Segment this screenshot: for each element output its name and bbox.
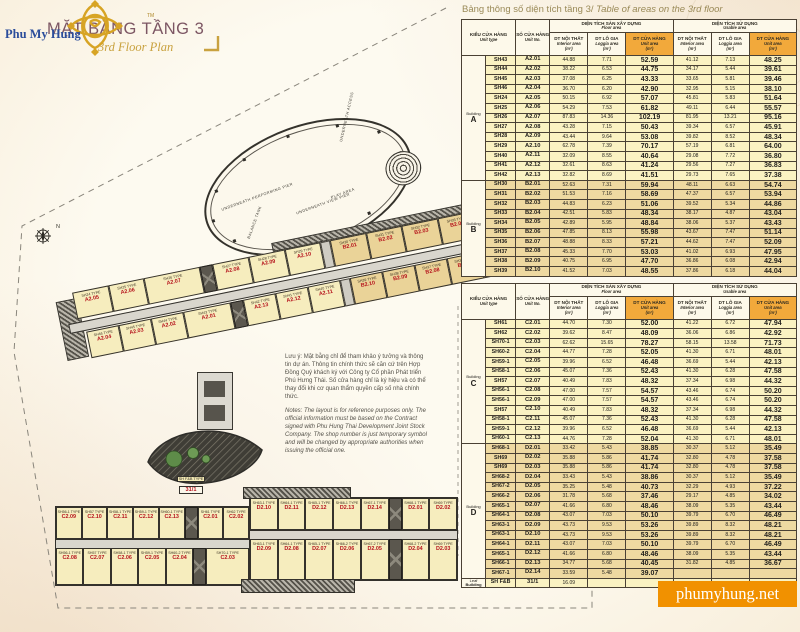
unit-usable-cell: 36.83 [749, 161, 796, 171]
loggia-floor-cell: 5.43 [588, 444, 626, 454]
col-floor-area-group: DIỆN TÍCH SÀN XÂY DỰNGFloor area [550, 20, 673, 33]
unit-usable-cell: 51.14 [749, 228, 796, 238]
interior-floor-cell: 43.73 [550, 521, 588, 531]
interior-usable-cell: 39.89 [673, 530, 711, 540]
unit-usable-cell: 50.20 [749, 386, 796, 396]
unit-no-cell: C2.03 [516, 338, 550, 348]
interior-usable-cell: 29.56 [673, 161, 711, 171]
unit-usable-cell: 48.21 [749, 521, 796, 531]
unit-number: D2.07 [312, 546, 326, 553]
unit-usable-cell: 39.61 [749, 65, 796, 75]
unit-cell: SH64-1 TYPED2.11 [278, 498, 306, 530]
unit-row: SH56-1 TYPEC2.09SH57 TYPEC2.10SH58-1 TYP… [56, 507, 249, 539]
unit-type-cell: SH56-1 [486, 386, 516, 396]
loggia-usable-cell: 5.35 [711, 549, 749, 559]
unit-type-cell: SH27 [486, 123, 516, 133]
loggia-floor-cell: 5.95 [588, 219, 626, 229]
table-row: SH34B2.0542.895.9548.8438.065.3743.43 [462, 219, 797, 229]
interior-usable-cell: 38.09 [673, 549, 711, 559]
loggia-usable-cell: 13.58 [711, 338, 749, 348]
unit-cell: SH27 TYPEA2.08 [213, 257, 254, 291]
unit-type-cell: SH44 [486, 65, 516, 75]
unit-cell: SH68-1 TYPED2.01 [402, 498, 430, 530]
unit-no-cell: D2.07 [516, 501, 550, 511]
table-row: SH62C2.0239.628.4748.0936.066.8642.92 [462, 329, 797, 339]
unit-number: A2.10 [297, 251, 312, 260]
loggia-floor-cell: 6.53 [588, 65, 626, 75]
unit-number: A2.12 [286, 295, 301, 304]
unit-no-cell: D2.01 [516, 444, 550, 454]
compass-north-label: N [56, 224, 60, 230]
loggia-floor-cell: 7.16 [588, 190, 626, 200]
loggia-usable-cell: 5.83 [711, 94, 749, 104]
unit-number: A2.02 [161, 321, 176, 330]
unit-row: SH63-1 TYPED2.09SH64-1 TYPED2.08SH65-1 T… [250, 539, 457, 580]
interior-floor-cell: 40.75 [550, 257, 588, 267]
table-row: SH67-2D2.0535.255.4840.7332.294.9337.22 [462, 482, 797, 492]
table-row: SH45A2.0337.086.2543.3333.655.8139.46 [462, 75, 797, 85]
table-row: SH63-1D2.0943.739.5353.2639.898.3248.21 [462, 521, 797, 531]
loggia-floor-cell: 5.68 [588, 559, 626, 569]
unit-no-cell: D2.08 [516, 511, 550, 521]
unit-floor-cell: 47.70 [626, 257, 673, 267]
unit-type-cell: SH59-1 [486, 425, 516, 435]
unit-no-cell: A2.11 [516, 151, 550, 161]
unit-usable-cell: 47.58 [749, 415, 796, 425]
interior-floor-cell: 43.73 [550, 530, 588, 540]
unit-number: C2.04 [172, 555, 186, 562]
building-label: LeafBuilding [462, 578, 486, 588]
table-row: SH27A2.0843.287.1550.4339.346.5745.91 [462, 123, 797, 133]
unit-no-cell: D2.02 [516, 453, 550, 463]
interior-usable-cell: 39.79 [673, 540, 711, 550]
table-row: SH70-1C2.0362.6215.6578.2758.1513.5871.7… [462, 338, 797, 348]
unit-type-cell: SH33 [486, 209, 516, 219]
unit-usable-cell: 37.58 [749, 453, 796, 463]
unit-floor-cell: 52.43 [626, 367, 673, 377]
interior-floor-cell: 36.70 [550, 84, 588, 94]
table-row: SH26A2.0787.8314.36102.1981.9513.2195.16 [462, 113, 797, 123]
unit-no-cell: C2.06 [516, 367, 550, 377]
unit-no-cell: A2.07 [516, 113, 550, 123]
unit-no-cell: B2.05 [516, 219, 550, 229]
unit-type-cell: SH67-2 [486, 482, 516, 492]
interior-floor-cell: 31.78 [550, 492, 588, 502]
unit-type-cell: SH24 [486, 94, 516, 104]
interior-usable-cell: 31.82 [673, 559, 711, 569]
unit-no-cell: A2.05 [516, 94, 550, 104]
table-row: SH40A2.1132.098.5540.6429.087.7236.80 [462, 151, 797, 161]
unit-floor-cell: 46.48 [626, 425, 673, 435]
unit-number: D2.01 [408, 505, 422, 512]
unit-floor-cell: 38.86 [626, 473, 673, 483]
unit-usable-cell: 48.01 [749, 348, 796, 358]
unit-cell: SH28 TYPEA2.09 [248, 250, 289, 284]
unit-number: A2.13 [254, 302, 269, 311]
unit-usable-cell: 54.74 [749, 180, 796, 190]
unit-floor-cell: 48.84 [626, 219, 673, 229]
loggia-usable-cell: 6.57 [711, 190, 749, 200]
unit-no-cell: B2.07 [516, 238, 550, 248]
unit-no-cell: D2.11 [516, 540, 550, 550]
elevator-core [185, 507, 198, 539]
unit-type-cell: SH29 [486, 142, 516, 152]
unit-type-cell: SH32 [486, 199, 516, 209]
interior-floor-cell: 33.42 [550, 444, 588, 454]
unit-cell: SH32 TYPEB2.03 [402, 218, 443, 252]
unit-floor-cell: 54.57 [626, 396, 673, 406]
tree-icon [202, 455, 210, 463]
loggia-floor-cell: 9.53 [588, 530, 626, 540]
unit-floor-cell: 46.48 [626, 358, 673, 368]
interior-floor-cell: 47.85 [550, 228, 588, 238]
loggia-floor-cell: 7.30 [588, 319, 626, 329]
loggia-usable-cell: 7.27 [711, 161, 749, 171]
unit-number: D2.12 [312, 505, 326, 512]
interior-floor-cell: 32.61 [550, 161, 588, 171]
unit-number: D2.13 [340, 505, 354, 512]
unit-cell: SH63-1 TYPED2.10 [250, 498, 278, 530]
unit-usable-cell: 42.92 [749, 329, 796, 339]
loggia-floor-cell: 7.70 [588, 247, 626, 257]
unit-no-cell: D2.13 [516, 559, 550, 569]
interior-usable-cell: 81.95 [673, 113, 711, 123]
unit-number: C2.12 [139, 514, 153, 521]
interior-floor-cell: 43.07 [550, 511, 588, 521]
unit-number: C2.07 [90, 555, 104, 562]
unit-usable-cell: 46.49 [749, 511, 796, 521]
loggia-floor-cell: 5.48 [588, 482, 626, 492]
unit-type-cell: SH39 [486, 267, 516, 277]
loggia-floor-cell: 5.43 [588, 473, 626, 483]
interior-floor-cell: 45.07 [550, 367, 588, 377]
interior-usable-cell: 41.12 [673, 56, 711, 66]
unit-number: D2.09 [257, 546, 271, 553]
unit-floor-cell: 59.94 [626, 180, 673, 190]
unit-usable-cell: 48.01 [749, 434, 796, 444]
unit-no-cell: D2.05 [516, 482, 550, 492]
unit-type-cell: SH67-1 [486, 569, 516, 579]
col-interior-usable: DT NỘI THẤTInterior area(m²) [673, 296, 711, 319]
interior-usable-cell: 49.11 [673, 103, 711, 113]
loggia-floor-cell: 5.48 [588, 569, 626, 579]
interior-usable-cell: 36.69 [673, 425, 711, 435]
loggia-floor-cell: 6.52 [588, 425, 626, 435]
building-label: BuildingB [462, 180, 486, 276]
unit-floor-cell: 42.90 [626, 84, 673, 94]
unit-cell: SH67-1 TYPED2.14 [361, 498, 389, 530]
col-unit-floor: DT CỬA HÀNGUnit area(m²) [626, 33, 673, 56]
unit-floor-cell: 58.69 [626, 190, 673, 200]
unit-no-cell: 31/1 [516, 578, 550, 588]
unit-number: A2.07 [166, 278, 181, 287]
unit-type-cell: SH64-1 [486, 540, 516, 550]
underneath-view-pier-label: UNDERNEATH VIEW PIER [296, 201, 326, 216]
interior-floor-cell: 43.07 [550, 540, 588, 550]
unit-usable-cell: 43.43 [749, 219, 796, 229]
table-row: SH57C2.0740.497.8348.3237.346.9844.32 [462, 377, 797, 387]
areas-table: KIỂU CỬA HÀNGUnit typeSỐ CỬA HÀNGUnit No… [461, 283, 797, 589]
unit-floor-cell: 41.74 [626, 463, 673, 473]
loggia-floor-cell: 7.57 [588, 396, 626, 406]
interior-floor-cell: 33.59 [550, 569, 588, 579]
brand-name: Phu My Hung [5, 27, 81, 42]
table-row: SH56-1C2.0947.007.5754.5743.466.7450.20 [462, 396, 797, 406]
loggia-usable-cell: 7.65 [711, 171, 749, 181]
compass-rose: N [34, 227, 58, 251]
unit-usable-cell: 39.46 [749, 75, 796, 85]
loggia-usable-cell: 6.74 [711, 396, 749, 406]
loggia-usable-cell: 7.13 [711, 56, 749, 66]
unit-number: B2.10 [360, 280, 375, 289]
unit-cell: SH24 TYPEA2.05 [72, 285, 113, 319]
interior-usable-cell: 30.37 [673, 473, 711, 483]
col-loggia-usable: DT LÔ GIALoggia area(m²) [711, 296, 749, 319]
unit-floor-cell: 102.19 [626, 113, 673, 123]
loggia-usable-cell: 6.28 [711, 415, 749, 425]
building-label: BuildingD [462, 444, 486, 578]
loggia-floor-cell: 7.53 [588, 103, 626, 113]
unit-usable-cell: 42.13 [749, 358, 796, 368]
table-row: SH28A2.0943.449.6453.0839.828.5248.34 [462, 132, 797, 142]
unit-usable-cell: 44.32 [749, 377, 796, 387]
roof-hatch [241, 579, 355, 593]
spiral-ramp [381, 146, 426, 190]
unit-type-cell: SH59-1 [486, 358, 516, 368]
unit-type-cell: SH65-1 [486, 549, 516, 559]
loggia-floor-cell: 7.03 [588, 267, 626, 277]
unit-no-cell: A2.10 [516, 142, 550, 152]
table-row: SH57C2.1040.497.8348.3237.346.9844.32 [462, 406, 797, 416]
unit-number: C2.06 [117, 555, 131, 562]
unit-no-cell: B2.06 [516, 228, 550, 238]
loggia-usable-cell: 6.63 [711, 180, 749, 190]
interior-floor-cell: 16.09 [550, 578, 588, 588]
unit-number: B2.08 [425, 267, 440, 276]
table-row: SH68-2D2.0433.435.4338.8630.375.1235.49 [462, 473, 797, 483]
loggia-floor-cell: 6.80 [588, 501, 626, 511]
table-row: SH39B2.1041.527.0348.5537.866.1844.04 [462, 267, 797, 277]
unit-number: B2.02 [378, 235, 393, 244]
interior-usable-cell: 38.17 [673, 209, 711, 219]
col-interior-usable: DT NỘI THẤTInterior area(m²) [673, 33, 711, 56]
service-room [204, 381, 225, 397]
table-row: SH66-1D2.1334.775.6840.4531.824.8536.67 [462, 559, 797, 569]
table-row: BuildingASH43A2.0144.887.7152.5941.127.1… [462, 56, 797, 66]
interior-usable-cell: 32.80 [673, 463, 711, 473]
unit-no-cell: C2.05 [516, 358, 550, 368]
col-unit-floor: DT CỬA HÀNGUnit area(m²) [626, 296, 673, 319]
loggia-floor-cell: 7.57 [588, 386, 626, 396]
loggia-floor-cell: 7.36 [588, 367, 626, 377]
loggia-usable-cell: 7.47 [711, 238, 749, 248]
unit-no-cell: C2.07 [516, 377, 550, 387]
unit-floor-cell: 44.75 [626, 65, 673, 75]
loggia-floor-cell: 8.33 [588, 238, 626, 248]
unit-usable-cell: 43.44 [749, 549, 796, 559]
table-row: SH60-2C2.0444.777.2852.0541.306.7148.01 [462, 348, 797, 358]
col-interior-floor: DT NỘI THẤTInterior area(m²) [550, 296, 588, 319]
table-row: SH63-1D2.1043.739.5353.2639.898.3248.21 [462, 530, 797, 540]
loggia-floor-cell: 9.64 [588, 132, 626, 142]
loggia-floor-cell: 7.03 [588, 540, 626, 550]
loggia-usable-cell: 6.28 [711, 367, 749, 377]
unit-floor-cell: 43.33 [626, 75, 673, 85]
unit-usable-cell: 64.00 [749, 142, 796, 152]
loggia-usable-cell [711, 569, 749, 579]
loggia-floor-cell: 14.36 [588, 113, 626, 123]
unit-usable-cell: 48.21 [749, 530, 796, 540]
unit-cell: SH40 TYPEA2.11 [308, 280, 346, 313]
table-row: SH37B2.0845.337.7053.0341.026.9347.95 [462, 247, 797, 257]
interior-usable-cell: 44.62 [673, 238, 711, 248]
interior-usable-cell: 39.79 [673, 511, 711, 521]
tree-icon [188, 448, 199, 459]
table-row: SH69D2.0235.885.8641.7432.804.7837.58 [462, 453, 797, 463]
area-tables-panel: Bảng thông số diện tích tầng 3/ Table of… [461, 0, 799, 594]
building-d-strip: SH63-1 TYPED2.10SH64-1 TYPED2.11SH65-1 T… [249, 497, 458, 581]
table-row: SH42A2.1332.828.6941.5129.737.6537.38 [462, 171, 797, 181]
interior-usable-cell: 43.46 [673, 396, 711, 406]
unit-number: A2.06 [120, 287, 135, 296]
unit-type-cell: SH66-2 [486, 492, 516, 502]
loggia-usable-cell: 6.81 [711, 142, 749, 152]
interior-usable-cell: 41.30 [673, 348, 711, 358]
col-unit-no: SỐ CỬA HÀNGUnit No. [516, 20, 550, 56]
interior-usable-cell: 36.69 [673, 358, 711, 368]
service-room [204, 405, 225, 421]
unit-cell: SH69 TYPED2.03 [429, 539, 457, 580]
areas-table-cd: KIỂU CỬA HÀNGUnit typeSỐ CỬA HÀNGUnit No… [461, 283, 799, 589]
unit-usable-cell: 42.13 [749, 425, 796, 435]
unit-usable-cell: 43.44 [749, 501, 796, 511]
elevator-core [193, 548, 206, 585]
table-row: SH58-1C2.1145.077.3652.4341.306.2847.58 [462, 415, 797, 425]
unit-cell: SH58-1 TYPEC2.11 [107, 507, 133, 539]
unit-type-cell: SH26 [486, 113, 516, 123]
unit-type-cell: SH37 [486, 247, 516, 257]
interior-usable-cell: 32.80 [673, 453, 711, 463]
unit-number: C2.13 [165, 514, 179, 521]
interior-floor-cell: 44.70 [550, 319, 588, 329]
unit-type-cell: SH69 [486, 453, 516, 463]
loggia-usable-cell: 5.44 [711, 358, 749, 368]
areas-table: KIỂU CỬA HÀNGUnit typeSỐ CỬA HÀNGUnit No… [461, 19, 797, 277]
unit-floor-cell: 51.06 [626, 199, 673, 209]
unit-cell: SH65-1 TYPED2.12 [305, 498, 333, 530]
table-row: SH59-1C2.0539.966.5246.4836.695.4442.13 [462, 358, 797, 368]
unit-type-cell: SH58-1 [486, 415, 516, 425]
unit-usable-cell: 47.58 [749, 367, 796, 377]
loggia-floor-cell: 7.83 [588, 377, 626, 387]
unit-cell: SH63-1 TYPED2.09 [250, 539, 278, 580]
loggia-usable-cell: 5.34 [711, 199, 749, 209]
table-row: BuildingBSH30B2.0152.637.3159.9448.116.6… [462, 180, 797, 190]
interior-usable-cell: 47.37 [673, 190, 711, 200]
unit-row: SH63-1 TYPED2.10SH64-1 TYPED2.11SH65-1 T… [250, 498, 457, 530]
unit-type-cell: SH68-1 [486, 444, 516, 454]
loggia-usable-cell: 4.78 [711, 463, 749, 473]
interior-floor-cell: 34.77 [550, 559, 588, 569]
unit-number: D2.05 [368, 546, 382, 553]
col-unit-usable: DT CỬA HÀNGUnit area(m²) [749, 33, 796, 56]
unit-floor-cell: 48.09 [626, 329, 673, 339]
unit-usable-cell: 95.16 [749, 113, 796, 123]
unit-cell: SH30 TYPEB2.01 [330, 233, 371, 267]
unit-usable-cell: 44.86 [749, 199, 796, 209]
loggia-usable-cell: 7.47 [711, 228, 749, 238]
loggia-usable-cell: 8.52 [711, 132, 749, 142]
loggia-floor-cell: 8.69 [588, 171, 626, 181]
unit-number: A2.11 [318, 289, 333, 298]
unit-no-cell: B2.02 [516, 190, 550, 200]
unit-floor-cell: 50.10 [626, 540, 673, 550]
unit-type-cell: SH38 [486, 257, 516, 267]
col-floor-area-group: DIỆN TÍCH SÀN XÂY DỰNGFloor area [550, 283, 673, 296]
unit-no-cell: C2.01 [516, 319, 550, 329]
unit-floor-cell: 53.03 [626, 247, 673, 257]
unit-type-cell: SH63-1 [486, 521, 516, 531]
loggia-usable-cell: 5.81 [711, 75, 749, 85]
col-usable-area-group: DIỆN TÍCH SỬ DỤNGUsable area [673, 20, 796, 33]
interior-usable-cell: 30.37 [673, 444, 711, 454]
underneath-access-label: UNDERNEATH ACCESS [339, 112, 350, 142]
interior-usable-cell: 57.19 [673, 142, 711, 152]
unit-usable-cell: 42.94 [749, 257, 796, 267]
interior-usable-cell: 41.30 [673, 367, 711, 377]
unit-usable-cell: 36.67 [749, 559, 796, 569]
unit-type-cell: SH41 [486, 161, 516, 171]
interior-usable-cell: 36.86 [673, 257, 711, 267]
table-row: SH25A2.0654.297.5361.8249.116.4455.57 [462, 103, 797, 113]
unit-floor-cell: 54.57 [626, 386, 673, 396]
unit-number: B2.01 [342, 242, 357, 251]
loggia-floor-cell: 5.86 [588, 463, 626, 473]
loggia-usable-cell: 7.72 [711, 151, 749, 161]
leaf-unit-type-label: SH F&B TYPE [177, 476, 206, 482]
unit-cell: SH67-2 TYPED2.05 [361, 539, 389, 580]
interior-usable-cell: 33.65 [673, 75, 711, 85]
loggia-usable-cell: 6.98 [711, 377, 749, 387]
interior-usable-cell: 38.06 [673, 219, 711, 229]
interior-usable-cell: 29.08 [673, 151, 711, 161]
interior-floor-cell: 43.44 [550, 132, 588, 142]
interior-floor-cell: 62.78 [550, 142, 588, 152]
loggia-usable-cell: 4.87 [711, 209, 749, 219]
unit-type-cell: SH64-1 [486, 511, 516, 521]
unit-no-cell: D2.10 [516, 530, 550, 540]
unit-floor-cell: 40.73 [626, 482, 673, 492]
interior-floor-cell: 41.52 [550, 267, 588, 277]
pier-column-dots [188, 166, 191, 169]
elevator-core [389, 539, 402, 580]
loggia-usable-cell: 5.37 [711, 219, 749, 229]
loggia-floor-cell: 5.86 [588, 453, 626, 463]
loggia-floor-cell: 7.15 [588, 123, 626, 133]
loggia-usable-cell: 6.08 [711, 257, 749, 267]
unit-type-cell: SH60-1 [486, 434, 516, 444]
interior-floor-cell: 35.25 [550, 482, 588, 492]
unit-floor-cell: 48.32 [626, 377, 673, 387]
unit-floor-cell: 52.00 [626, 319, 673, 329]
unit-floor-cell: 50.10 [626, 511, 673, 521]
unit-type-cell: SH42 [486, 171, 516, 181]
unit-floor-cell: 48.46 [626, 501, 673, 511]
unit-number: C2.01 [203, 514, 217, 521]
unit-type-cell: SH65-1 [486, 501, 516, 511]
table-row: SH41A2.1232.618.6341.2429.567.2736.83 [462, 161, 797, 171]
unit-no-cell: C2.11 [516, 415, 550, 425]
